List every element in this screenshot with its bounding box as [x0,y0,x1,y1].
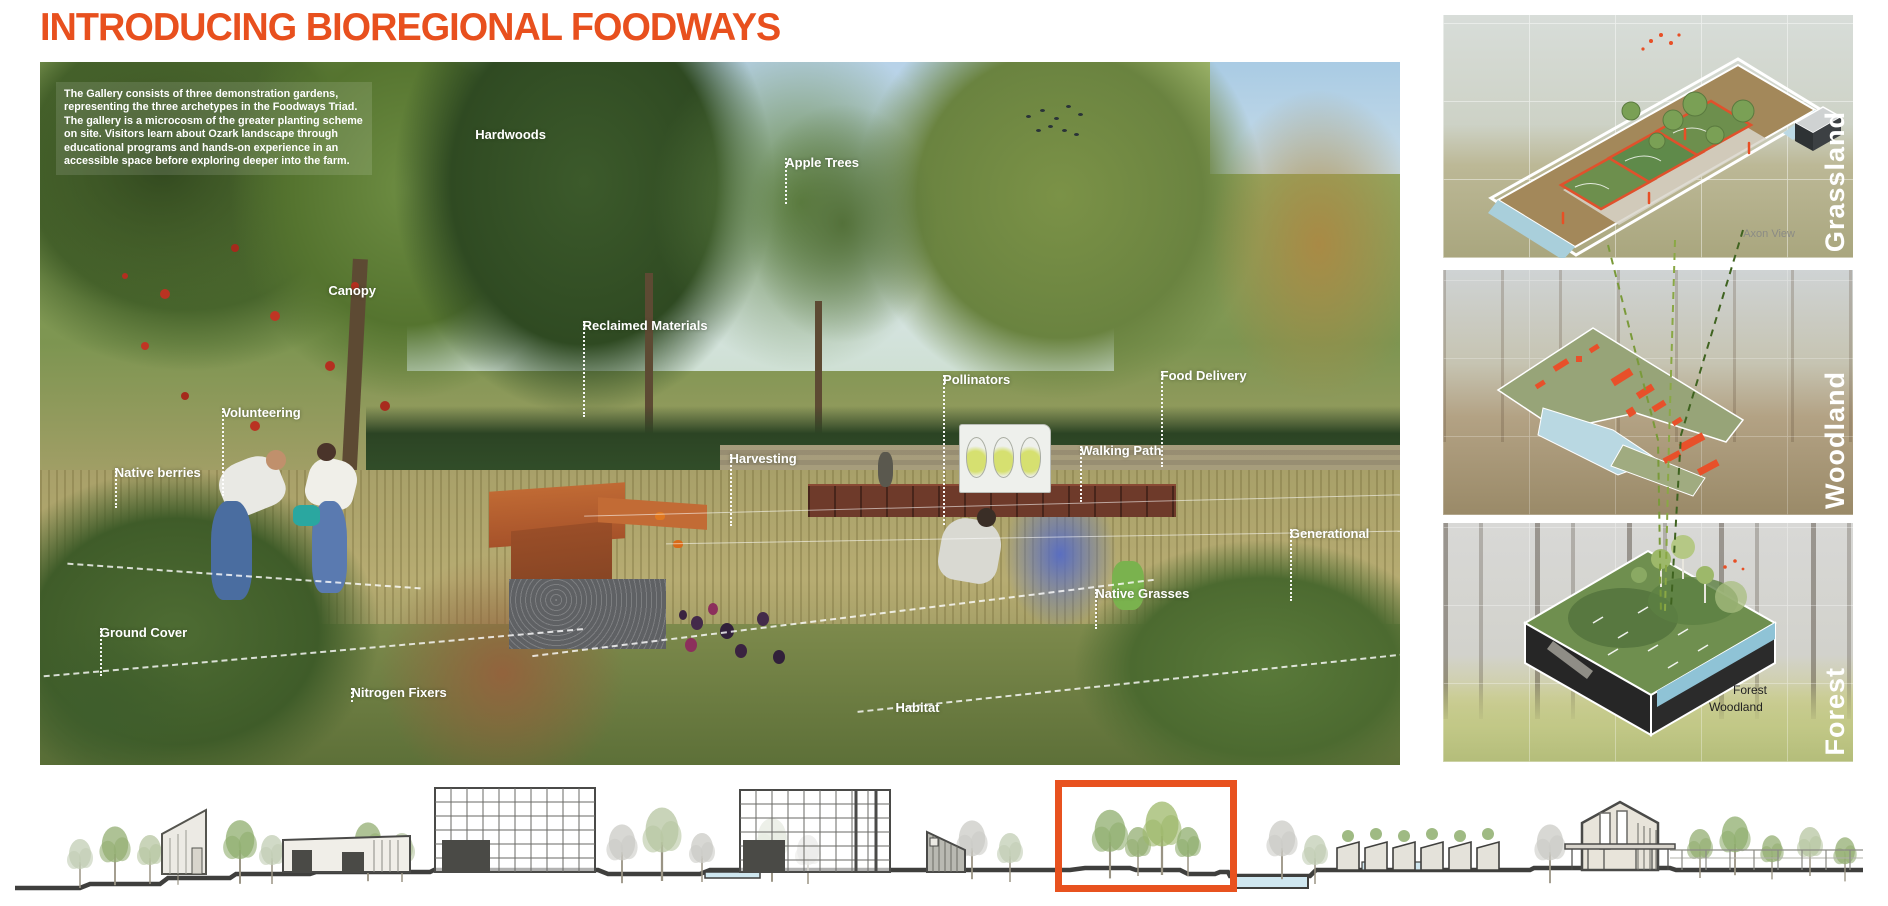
leader-line [100,628,102,676]
leader-line [730,454,732,526]
panel-label-grassland: Grassland [1820,111,1851,252]
forest-axon-diagram [1443,523,1853,762]
panel-woodland-plan: Woodland [1443,270,1853,515]
slant-roof-cabin [162,810,206,874]
woodland-site-plan [1443,270,1853,515]
panel-grassland-axon: Axon View Grassland [1443,15,1853,258]
leader-line [115,468,117,508]
axon-label-forest: Forest [1733,683,1767,697]
leader-line [785,158,787,204]
greenhouse-2 [740,790,890,872]
leader-line [1080,446,1082,502]
leader-line [943,375,945,525]
low-pavilion [283,836,410,872]
callout-layer: HardwoodsApple TreesCanopyReclaimed Mate… [40,62,1400,765]
panel-forest-axon: Forest Woodland Forest [1443,523,1853,762]
leader-line [1290,529,1292,601]
gabled-barn [1565,802,1675,870]
section-highlight-box [1055,780,1237,892]
presentation-board: INTRODUCING BIOREGIONAL FOODWAYS [0,0,1888,906]
site-section-drawing [10,778,1868,900]
grassland-axon-diagram [1443,15,1853,258]
leader-line [351,688,353,702]
leader-line [583,321,585,417]
main-render: The Gallery consists of three demonstrat… [40,62,1400,765]
leader-line [1095,589,1097,629]
axon-label-woodland: Woodland [1709,700,1763,714]
axon-view-caption: Axon View [1743,228,1795,240]
page-title: INTRODUCING BIOREGIONAL FOODWAYS [40,6,780,50]
panel-label-forest: Forest [1820,667,1851,756]
greenhouse-1 [435,788,595,872]
leader-line [222,408,224,496]
panel-label-woodland: Woodland [1820,371,1851,509]
